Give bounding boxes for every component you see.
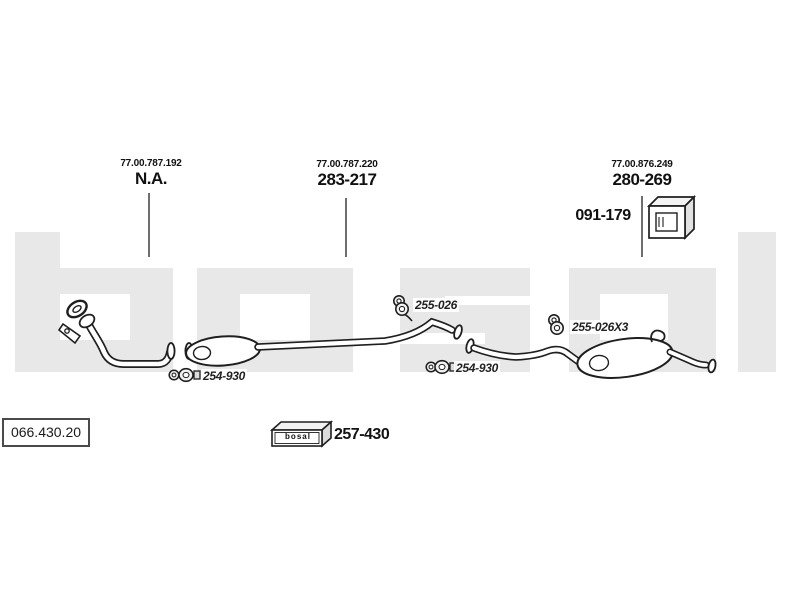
label-front-clamp: 254-930 [201,369,247,383]
part-number-front-pipe: N.A. [91,169,211,189]
mount-bracket-icon [649,197,694,238]
part-number-center-muffler: 283-217 [287,170,407,190]
watermark-letter-l [738,232,776,372]
pipe-clamp-icon-front [169,369,200,382]
exhaust-parts-diagram: 77.00.787.192 N.A. 77.00.787.220 283-217… [0,0,800,600]
front-pipe-flange [167,343,174,359]
label-rear-hanger: 255-026X3 [570,320,630,334]
callout-center-muffler: 77.00.787.220 283-217 [287,159,407,190]
kit-brand-label: bosal [276,432,320,441]
pipe-clamp-icon-rear [426,361,456,374]
oem-ref-center-muffler: 77.00.787.220 [287,159,407,170]
oem-ref-front-pipe: 77.00.787.192 [91,158,211,169]
oem-ref-rear-muffler: 77.00.876.249 [582,159,702,170]
callout-rear-muffler: 77.00.876.249 280-269 [582,159,702,190]
callout-front-pipe: 77.00.787.192 N.A. [91,158,211,189]
label-front-hanger: 255-026 [413,298,459,312]
part-number-fitting-kit: 257-430 [334,426,389,444]
rubber-hanger-icon-rear [549,315,563,334]
part-number-mount-bracket: 091-179 [566,207,640,225]
part-number-rear-muffler: 280-269 [582,170,702,190]
label-rear-clamp: 254-930 [454,361,500,375]
front-pipe-inlet-gasket [64,297,96,330]
diagram-code-box: 066.430.20 [2,418,90,447]
leader-lines [149,193,642,257]
diagram-code: 066.430.20 [11,424,81,440]
diagram-artwork [0,0,800,600]
